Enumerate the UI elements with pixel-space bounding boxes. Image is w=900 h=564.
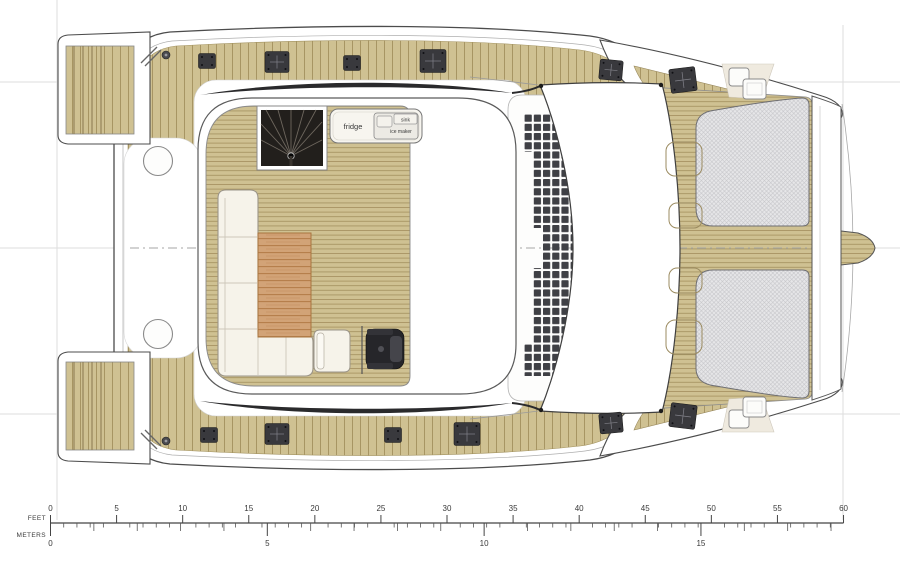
feet-tick-label: 0: [48, 504, 53, 513]
meters-tick-label: 15: [696, 539, 705, 548]
bowsprit: [841, 231, 875, 265]
hatch: [201, 428, 218, 443]
hatch: [385, 428, 402, 443]
hatch: [344, 56, 361, 71]
helm-seat: [362, 326, 404, 374]
hatch: [669, 67, 698, 94]
meters-tick-label: 0: [48, 539, 53, 548]
hatch: [599, 412, 624, 434]
coffee-table: [258, 233, 311, 337]
meters-unit-label: METERS: [17, 532, 47, 539]
feet-tick-label: 20: [310, 504, 319, 513]
feet-tick-label: 30: [443, 504, 452, 513]
hatch: [454, 423, 480, 446]
catamaran-deck-plan-page: fridge sink ice maker: [0, 0, 900, 564]
deck-plan-drawing: fridge sink ice maker: [0, 0, 900, 564]
hatch: [599, 59, 624, 81]
feet-unit-label: FEET: [28, 515, 46, 522]
spiral-staircase: [257, 106, 327, 170]
hatch: [265, 52, 289, 73]
meters-tick-label: 5: [265, 539, 270, 548]
hatch: [265, 424, 289, 445]
feet-tick-label: 5: [114, 504, 119, 513]
hatch: [420, 50, 446, 73]
feet-tick-label: 45: [641, 504, 650, 513]
starboard-transom-steps: [66, 46, 134, 134]
trampoline-port: [696, 270, 809, 398]
feet-tick-label: 60: [839, 504, 848, 513]
ice-maker-label: ice maker: [390, 129, 412, 135]
scale-ruler: FEET METERS 0510152025303540455055600510…: [17, 504, 849, 548]
sink-label: sink: [401, 118, 410, 124]
wet-bar: fridge sink ice maker: [330, 109, 422, 143]
hatch: [669, 403, 698, 430]
hatch: [199, 54, 216, 69]
trampoline-starboard: [696, 98, 809, 226]
feet-tick-label: 35: [509, 504, 518, 513]
fridge-label: fridge: [344, 122, 363, 131]
port-transom-steps: [66, 362, 134, 450]
feet-tick-label: 25: [376, 504, 385, 513]
meters-tick-label: 10: [480, 539, 489, 548]
feet-tick-label: 10: [178, 504, 187, 513]
forward-crossbeam: [812, 96, 841, 400]
armchair: [314, 330, 350, 372]
feet-tick-label: 55: [773, 504, 782, 513]
flybridge-saloon: fridge sink ice maker: [198, 98, 516, 394]
feet-tick-label: 40: [575, 504, 584, 513]
feet-tick-label: 50: [707, 504, 716, 513]
feet-tick-label: 15: [244, 504, 253, 513]
